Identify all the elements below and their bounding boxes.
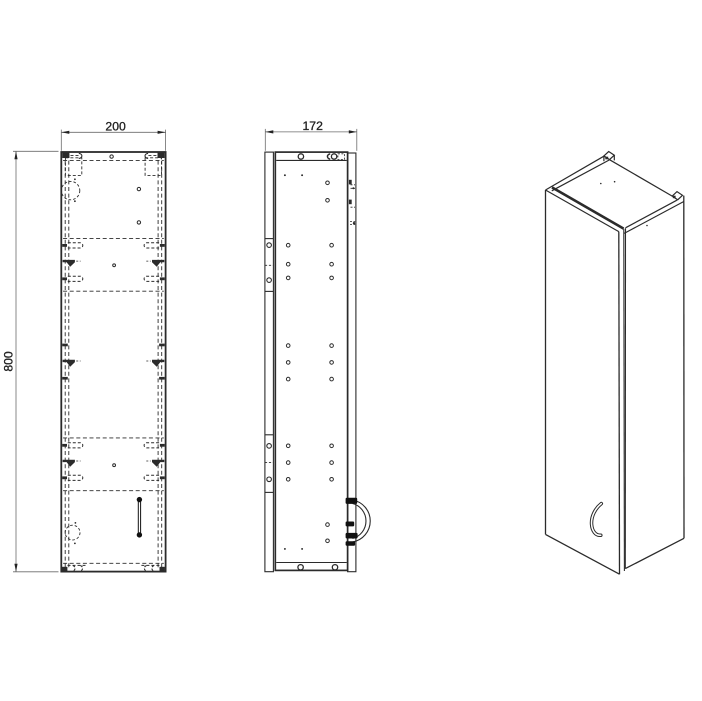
svg-text:800: 800 xyxy=(1,351,15,372)
svg-text:200: 200 xyxy=(105,119,126,133)
svg-text:172: 172 xyxy=(303,119,324,133)
